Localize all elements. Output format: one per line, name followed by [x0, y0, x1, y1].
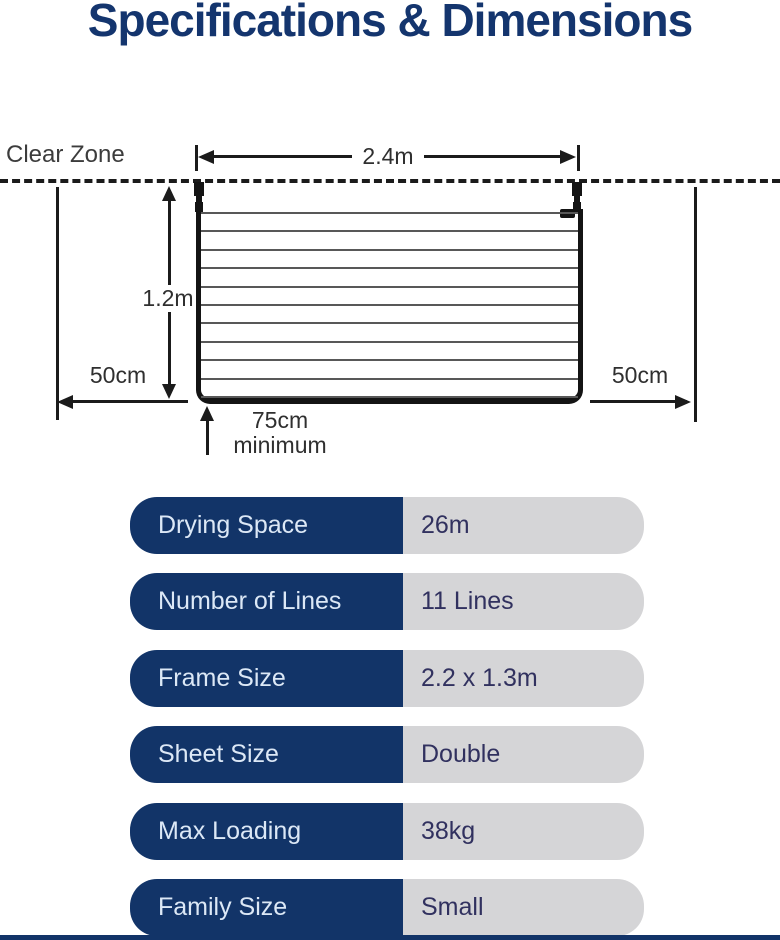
spec-row-drying-space: Drying Space 26m — [130, 497, 644, 554]
right-clearance-line — [694, 187, 697, 422]
footer-accent-bar — [0, 935, 780, 940]
spec-row-family-size: Family Size Small — [130, 879, 644, 936]
spec-value: Small — [403, 879, 644, 936]
drying-line — [201, 396, 578, 398]
spec-label: Max Loading — [130, 803, 403, 860]
floor-clearance-sublabel: minimum — [230, 432, 330, 459]
arrow-down-icon — [162, 384, 176, 399]
left-clearance-label: 50cm — [88, 362, 148, 389]
left-clearance-arrow-line — [65, 400, 188, 403]
arrow-up-icon — [162, 186, 176, 201]
width-dimension-label: 2.4m — [352, 143, 424, 170]
arrow-right-icon — [675, 395, 691, 409]
spec-row-sheet-size: Sheet Size Double — [130, 726, 644, 783]
drying-line — [201, 286, 578, 288]
ceiling-dashed-line — [0, 179, 780, 183]
drying-line — [201, 322, 578, 324]
spec-value: 2.2 x 1.3m — [403, 650, 644, 707]
spec-row-max-loading: Max Loading 38kg — [130, 803, 644, 860]
spec-label: Sheet Size — [130, 726, 403, 783]
floor-clearance-label: 75cm — [230, 407, 330, 434]
spec-value: 38kg — [403, 803, 644, 860]
drying-line — [201, 267, 578, 269]
drying-lines — [201, 212, 578, 398]
spec-value: Double — [403, 726, 644, 783]
drying-line — [201, 249, 578, 251]
spec-label: Number of Lines — [130, 573, 403, 630]
left-clearance-line — [56, 187, 59, 420]
arrow-left-icon — [57, 395, 73, 409]
right-clearance-label: 50cm — [608, 362, 672, 389]
drying-line — [201, 341, 578, 343]
spec-row-number-of-lines: Number of Lines 11 Lines — [130, 573, 644, 630]
right-clearance-arrow-line — [590, 400, 687, 403]
spec-value: 26m — [403, 497, 644, 554]
drying-line — [201, 304, 578, 306]
width-dim-tick-right — [577, 145, 580, 171]
clear-zone-label: Clear Zone — [6, 141, 125, 169]
width-dim-line-left — [212, 155, 352, 158]
drying-line — [201, 230, 578, 232]
spec-label: Drying Space — [130, 497, 403, 554]
drying-line — [201, 212, 578, 214]
spec-label: Frame Size — [130, 650, 403, 707]
drying-line — [201, 378, 578, 380]
width-dim-line-right — [424, 155, 564, 158]
floor-clearance-arrow-line — [206, 418, 209, 455]
drying-line — [201, 359, 578, 361]
spec-row-frame-size: Frame Size 2.2 x 1.3m — [130, 650, 644, 707]
spec-value: 11 Lines — [403, 573, 644, 630]
spec-label: Family Size — [130, 879, 403, 936]
page-title: Specifications & Dimensions — [0, 0, 780, 47]
height-dimension-label: 1.2m — [136, 285, 200, 312]
arrow-up-icon — [200, 406, 214, 421]
